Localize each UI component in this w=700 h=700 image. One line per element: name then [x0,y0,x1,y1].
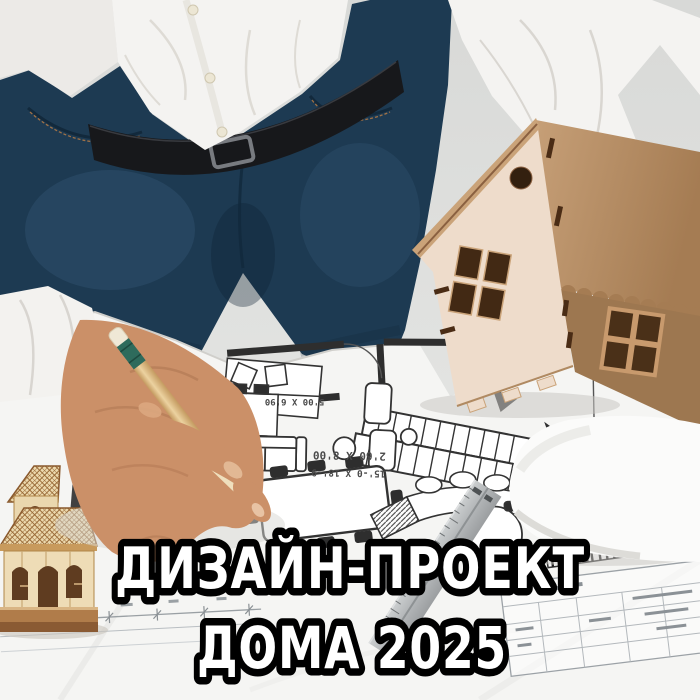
thumbnail-photo: 2'60 X 8'00 15'-0 X 18'-9 5'00 X 6'90 5'… [0,0,700,700]
small-house-window [12,567,28,600]
small-house-window [66,565,82,598]
dimension-label: 5'00 X 6'90 [265,396,325,406]
dimension-label: 15'-0 X 18'-9 [311,466,386,478]
shirt-button [188,5,198,15]
dimension-label: 2'60 X 8'00 [313,448,386,462]
title-line-2: ДОМА 2025 [197,614,507,682]
shirt-button [205,73,215,83]
house-vent-hole [510,167,532,189]
title-line-1: ДИЗАЙН-ПРОЕКТ [115,534,585,602]
house-side-window [599,306,665,377]
shirt-button [217,127,227,137]
photo-scene: 2'60 X 8'00 15'-0 X 18'-9 5'00 X 6'90 5'… [0,0,700,700]
small-house-door [38,566,58,612]
